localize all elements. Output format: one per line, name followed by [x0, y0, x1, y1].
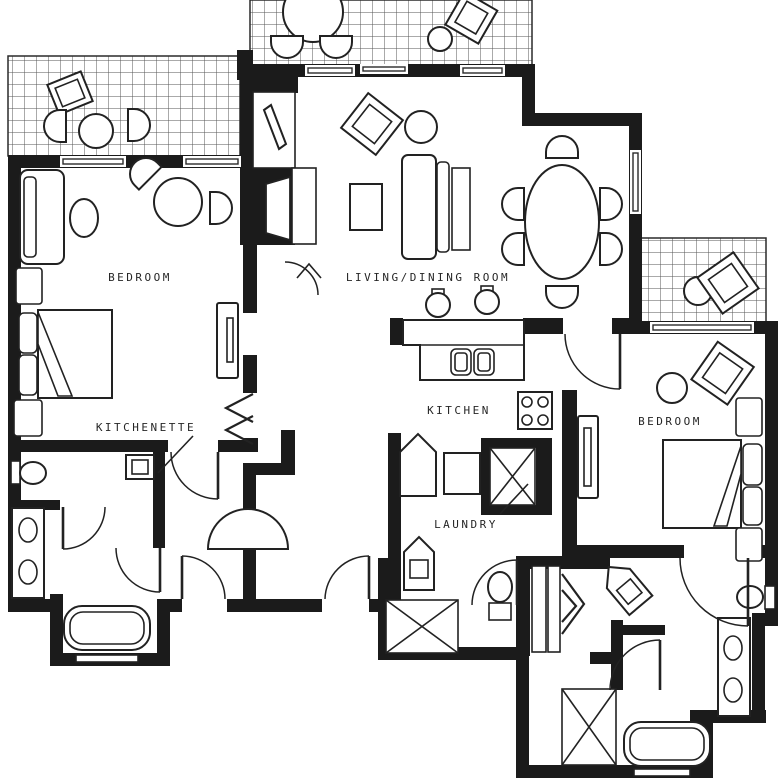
closet-mirror-icon [253, 92, 295, 168]
room-bathroom-left [11, 461, 150, 662]
nightstand-icon [14, 400, 42, 436]
window-icon [305, 65, 355, 76]
sofa-icon [402, 155, 470, 259]
armchair-icon [341, 93, 403, 155]
coffee-table-icon [350, 184, 382, 230]
label-bedroom-left: BEDROOM [108, 271, 172, 284]
window-icon [460, 65, 505, 76]
bed-icon [663, 440, 762, 528]
table-icon [154, 178, 202, 226]
door-icon [325, 556, 369, 599]
stove-icon [518, 392, 552, 429]
balcony-top-center [250, 0, 532, 65]
tv-dresser-icon [217, 303, 238, 378]
toilet-icon [11, 461, 46, 484]
chair-icon [210, 192, 232, 224]
bar-stool-icon [475, 286, 499, 314]
window-icon [630, 150, 641, 214]
toilet-icon [737, 586, 775, 609]
entry-arch-icon [208, 509, 288, 549]
label-bedroom-right: BEDROOM [638, 415, 702, 428]
floor-plan-canvas: BEDROOM [0, 0, 780, 783]
label-kitchen: KITCHEN [427, 404, 491, 417]
door-icon [116, 548, 160, 592]
bifold-closet-icon [532, 566, 584, 652]
shower-icon [562, 689, 616, 765]
tv-niche-icon [266, 177, 290, 240]
sink-icon [478, 353, 490, 371]
patio-side-table-icon [428, 27, 452, 51]
patio-chair-icon [271, 36, 303, 58]
label-kitchenette: KITCHENETTE [96, 421, 196, 434]
window-icon [360, 64, 408, 74]
patio-chair-icon [320, 36, 352, 58]
room-living-dining: LIVING/DINING ROOM [253, 92, 622, 380]
bar-stool-icon [426, 289, 450, 317]
balcony-right [634, 238, 766, 324]
side-table-icon [70, 199, 98, 237]
floor-plan: BEDROOM [0, 0, 780, 783]
bed-icon [19, 310, 112, 398]
balcony-top-left [8, 56, 240, 156]
door-icon [565, 334, 620, 389]
toilet-icon [488, 572, 512, 620]
entry-foyer [208, 394, 458, 653]
dining-set-icon [502, 136, 622, 308]
cabinet-icon [444, 453, 480, 494]
nightstand-icon [736, 528, 762, 561]
refrigerator-icon [400, 434, 436, 496]
stool-icon [657, 373, 687, 403]
window-icon [650, 322, 754, 333]
room-bedroom-left: BEDROOM [14, 151, 238, 436]
tv-dresser-icon [578, 416, 598, 498]
nightstand-icon [16, 268, 42, 304]
window-icon [60, 156, 126, 167]
sofa-icon [20, 170, 64, 264]
sink-icon [455, 353, 467, 371]
kitchen-bar-icon [403, 320, 524, 380]
door-arc-icon [285, 262, 318, 295]
shelf-icon [292, 168, 316, 244]
room-bedroom-right: BEDROOM [578, 342, 762, 561]
armchair-icon [691, 342, 753, 405]
pedestal-sink-icon [404, 537, 434, 590]
window-icon [183, 156, 241, 167]
patio-chair-icon [44, 110, 66, 142]
door-icon [171, 452, 218, 499]
label-living-dining: LIVING/DINING ROOM [346, 271, 510, 284]
vanity-sinks-icon [12, 508, 44, 598]
nightstand-icon [736, 398, 762, 436]
patio-table-icon [79, 114, 113, 148]
washer-dryer-icon [490, 448, 535, 505]
patio-chair-icon [128, 109, 150, 141]
side-table-icon [405, 111, 437, 143]
label-laundry: LAUNDRY [434, 518, 498, 531]
door-icon [63, 507, 105, 549]
vanity-sinks-icon [718, 618, 750, 716]
door-icon [182, 556, 225, 599]
bifold-closet-icon [226, 394, 253, 444]
entry-closet-icon [386, 600, 458, 653]
kitchenette-sink-icon [126, 455, 154, 479]
